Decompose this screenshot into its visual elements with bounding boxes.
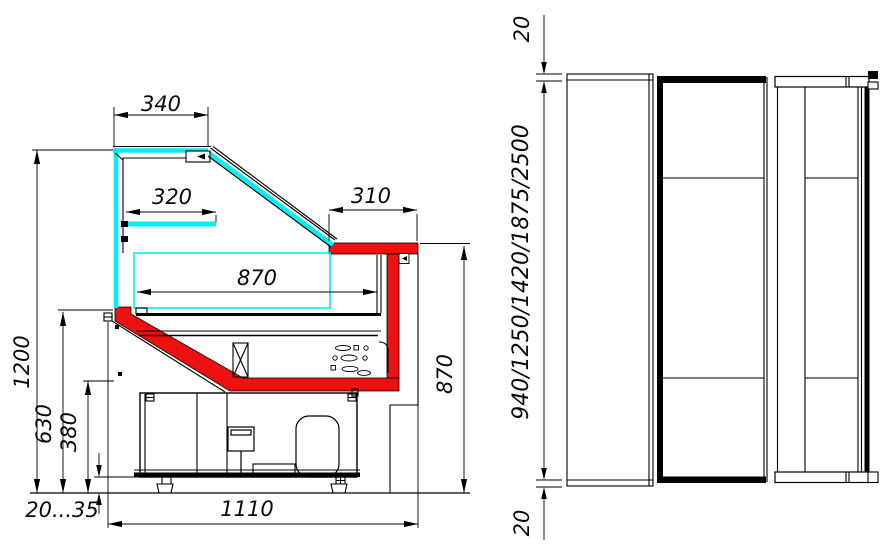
plan-linework [567, 71, 878, 486]
front-panel-bracket [104, 313, 112, 321]
rear-column-red [387, 254, 399, 378]
support-block-crosshatch [233, 343, 248, 377]
adjustable-foot-left [157, 477, 173, 493]
slope-inner-edge [208, 156, 331, 247]
slope-outer-edge-2 [213, 147, 337, 240]
display-well-liner [134, 253, 330, 308]
base-plate [134, 473, 360, 478]
front-glass-strip [567, 74, 653, 486]
worktop-red [329, 243, 418, 254]
door-rail-bottom [775, 472, 869, 483]
body-linework [30, 147, 470, 494]
glass-elements [113, 148, 333, 308]
dim-870-deck-label: 870 [237, 266, 277, 290]
technical-drawing: 340 320 310 870 1110 20...35 1200 630 38… [0, 0, 894, 559]
panel-bolt-lower [118, 372, 122, 376]
dim-340-label: 340 [141, 92, 181, 116]
side-section-view: 340 320 310 870 1110 20...35 1200 630 38… [10, 92, 470, 528]
dim-20-top-label: 20 [510, 16, 534, 43]
rear-wall-band [865, 87, 870, 472]
dim-320-label: 320 [152, 185, 192, 209]
worktop-bracket [399, 254, 409, 264]
corner-bracket-bottom [868, 472, 878, 483]
dim-870-height-label: 870 [433, 354, 457, 394]
door-rail-top [775, 77, 869, 88]
adjustable-foot-right [331, 477, 347, 493]
plan-view-labels: 20 940/1250/1420/1875/2500 20 [509, 16, 534, 537]
panel-bolt-upper [115, 325, 119, 329]
dim-630-label: 630 [32, 404, 56, 444]
dim-310-label: 310 [351, 184, 391, 208]
dim-1110-label: 1110 [220, 497, 273, 521]
arrow-20-bottom-lower [541, 487, 547, 499]
dim-20-bottom-label: 20 [510, 510, 534, 537]
compressor [296, 416, 339, 477]
dim-lengths-label: 940/1250/1420/1875/2500 [509, 124, 534, 420]
front-bottom-panel-red [115, 307, 399, 391]
top-plan-view: 20 940/1250/1420/1875/2500 20 [509, 15, 878, 540]
deck-left-border [657, 76, 663, 483]
dim-1200-label: 1200 [10, 335, 34, 388]
machine-top-brackets [146, 394, 356, 401]
vent-grille [331, 346, 371, 376]
arrow-20-bottom-upper [541, 468, 547, 480]
dim-380-label: 380 [57, 412, 81, 452]
front-sloped-glass [209, 153, 333, 245]
shelf-bracket-upper [121, 221, 128, 227]
arrow-20-top-lower [541, 81, 547, 93]
side-view-dimensions [32, 107, 470, 528]
corner-block-top [868, 71, 878, 79]
drawing-canvas: 340 320 310 870 1110 20...35 1200 630 38… [0, 0, 894, 559]
shelf-bracket-lower [121, 236, 128, 242]
dim-foot-range-label: 20...35 [25, 498, 98, 522]
arrow-20-top-upper [541, 62, 547, 74]
corner-bracket-top [868, 82, 878, 89]
deck-top-border [657, 76, 766, 83]
deck-bottom-border [657, 477, 766, 484]
plan-view-dimensions [536, 15, 562, 540]
slope-outer-edge-1 [211, 148, 336, 240]
